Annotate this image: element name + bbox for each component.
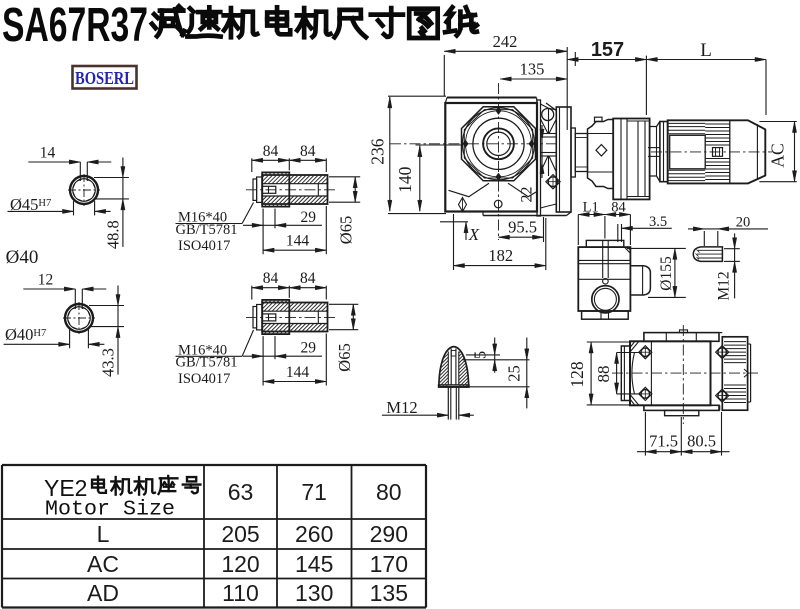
svg-text:182: 182 [488, 246, 513, 265]
svg-text:130: 130 [295, 580, 333, 606]
svg-text:144: 144 [286, 364, 310, 381]
svg-text:22: 22 [519, 187, 536, 203]
svg-text:84: 84 [611, 200, 626, 216]
svg-text:170: 170 [370, 551, 408, 577]
svg-text:236: 236 [368, 138, 388, 165]
svg-text:29: 29 [301, 340, 317, 357]
svg-text:14: 14 [40, 145, 56, 162]
svg-text:145: 145 [295, 551, 333, 577]
svg-text:Ø155: Ø155 [658, 256, 675, 291]
svg-text:ISO4017: ISO4017 [178, 238, 230, 254]
svg-text:71.5: 71.5 [649, 432, 678, 451]
svg-text:128: 128 [567, 361, 587, 388]
svg-text:43.3: 43.3 [98, 348, 117, 377]
svg-text:Ø65: Ø65 [335, 343, 354, 371]
svg-text:84: 84 [300, 270, 316, 287]
svg-text:120: 120 [221, 551, 259, 577]
svg-text:GB/T5781: GB/T5781 [176, 355, 238, 371]
svg-text:205: 205 [221, 521, 259, 547]
svg-text:SA67R37: SA67R37 [2, 0, 148, 52]
svg-text:5: 5 [471, 351, 490, 359]
svg-text:260: 260 [295, 521, 333, 547]
svg-text:L: L [700, 40, 712, 61]
svg-text:Motor Size: Motor Size [45, 499, 175, 522]
svg-text:AD: AD [87, 580, 119, 606]
svg-text:110: 110 [222, 580, 259, 606]
svg-text:29: 29 [301, 209, 317, 226]
svg-text:48.8: 48.8 [103, 220, 122, 249]
svg-text:X: X [468, 225, 480, 244]
svg-text:M12: M12 [716, 271, 733, 300]
svg-text:140: 140 [395, 166, 415, 193]
svg-text:M12: M12 [386, 398, 417, 417]
svg-text:3.5: 3.5 [649, 214, 667, 230]
svg-text:25: 25 [505, 365, 524, 382]
svg-text:80: 80 [376, 479, 402, 505]
svg-text:84: 84 [300, 143, 316, 160]
svg-text:242: 242 [493, 32, 518, 51]
svg-text:88: 88 [594, 366, 613, 383]
svg-text:84: 84 [263, 143, 279, 160]
svg-text:BOSERL: BOSERL [75, 68, 134, 88]
svg-text:L1: L1 [583, 200, 599, 216]
svg-text:AC: AC [768, 143, 788, 167]
svg-text:GB/T5781: GB/T5781 [176, 222, 238, 238]
svg-text:95.5: 95.5 [508, 218, 537, 237]
svg-text:L: L [97, 521, 110, 547]
svg-text:63: 63 [228, 479, 254, 505]
svg-text:135: 135 [520, 60, 545, 79]
svg-text:12: 12 [38, 272, 54, 289]
svg-text:144: 144 [286, 233, 310, 250]
svg-text:71: 71 [301, 479, 327, 505]
svg-text:Ø40: Ø40 [6, 247, 39, 268]
svg-text:YE2: YE2 [44, 475, 87, 501]
svg-text:135: 135 [370, 580, 408, 606]
svg-text:AC: AC [87, 551, 119, 577]
svg-text:ISO4017: ISO4017 [178, 371, 230, 387]
svg-text:20: 20 [736, 215, 751, 231]
svg-text:Ø65: Ø65 [337, 216, 356, 244]
svg-text:290: 290 [370, 521, 408, 547]
svg-text:84: 84 [263, 270, 279, 287]
svg-text:157: 157 [591, 39, 624, 61]
svg-text:80.5: 80.5 [687, 432, 716, 451]
